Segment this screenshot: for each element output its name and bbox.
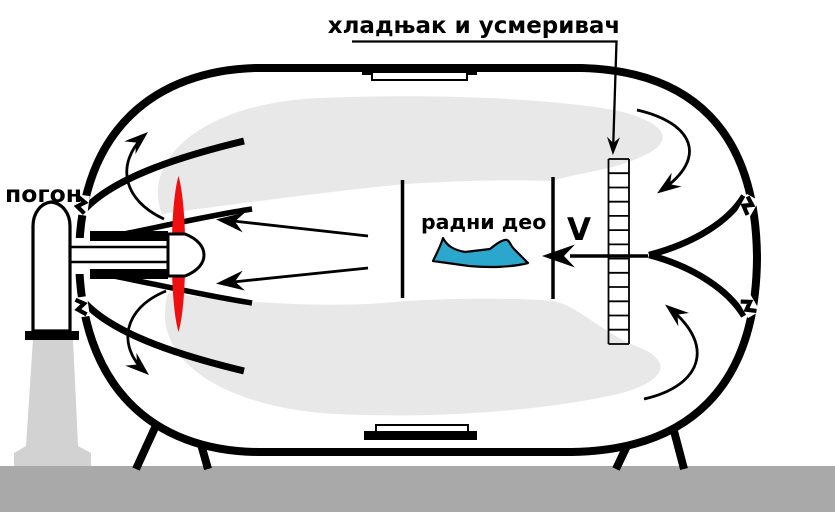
cooler-straightener-label: хладњак и усмеривач — [328, 13, 621, 39]
access-hatch-top — [362, 66, 477, 80]
drive-shaft — [66, 247, 170, 262]
propeller-spinner — [168, 234, 204, 276]
access-hatch-bottom — [364, 425, 477, 440]
working-section-label: радни део — [421, 210, 546, 234]
hatch-bottom-outer — [364, 431, 477, 440]
diagram-canvas: хладњак и усмеривач погон радни део V — [0, 0, 835, 512]
velocity-label: V — [567, 212, 591, 248]
drive-label: погон — [5, 180, 82, 208]
drive-motor-housing — [33, 202, 70, 331]
ground — [0, 466, 835, 512]
motor-pedestal — [14, 339, 91, 466]
wind-tunnel-diagram: хладњак и усмеривач погон радни део V — [0, 0, 835, 512]
motor-mount-plate — [25, 331, 79, 340]
hatch-top-inner — [372, 72, 467, 80]
fan-fairing-upper — [90, 231, 168, 241]
joint-mark-bottom-left — [73, 296, 90, 318]
fan-fairing-lower — [90, 269, 168, 279]
